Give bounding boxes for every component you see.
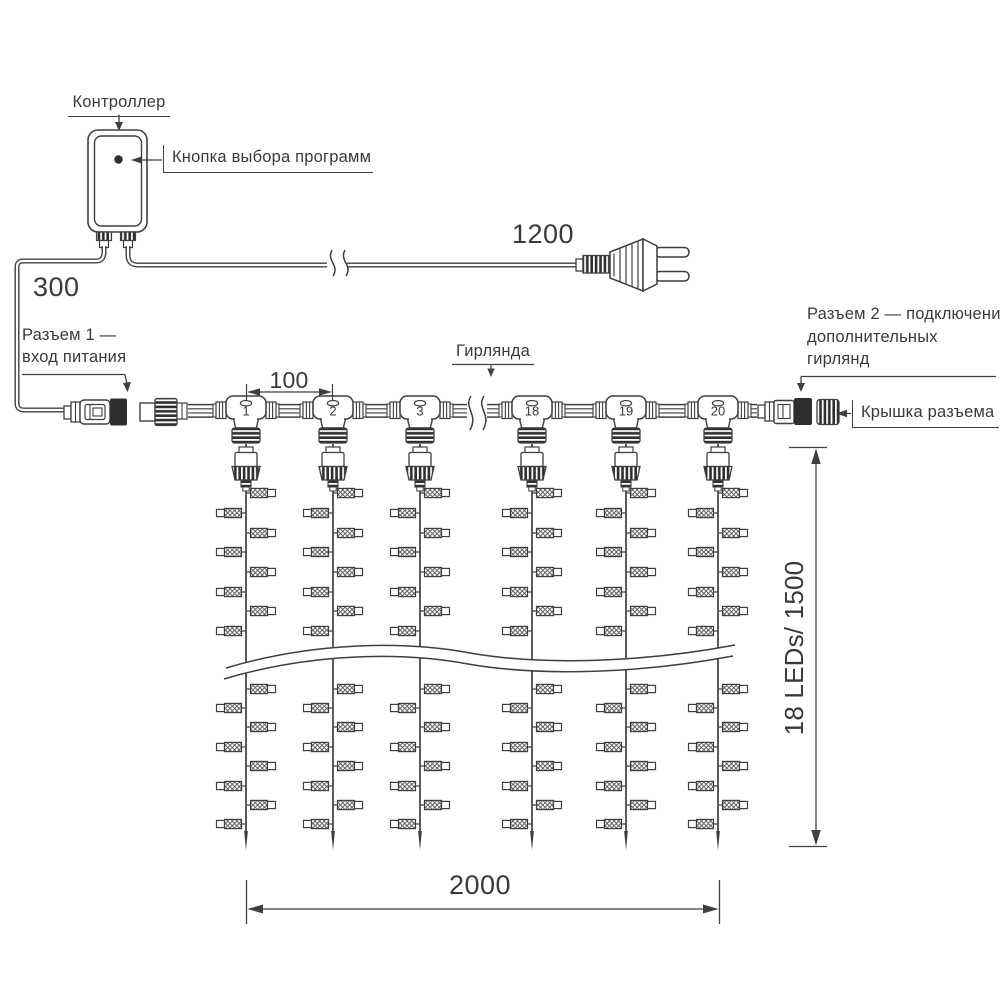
led <box>420 722 450 731</box>
led-body <box>312 703 329 712</box>
power-input-connector <box>64 399 187 426</box>
led-cap <box>268 762 276 769</box>
led-cap <box>503 782 511 789</box>
led-cap <box>597 704 605 711</box>
led-cap <box>554 607 562 614</box>
connector2-socket <box>794 398 812 425</box>
program-select-button <box>114 155 122 163</box>
led-body <box>338 488 355 497</box>
led-body <box>605 626 622 635</box>
led <box>304 742 334 751</box>
drop-ring-nut <box>518 428 546 443</box>
led-cap <box>217 548 225 555</box>
led-cap <box>442 568 450 575</box>
led-cap <box>355 762 363 769</box>
led <box>391 703 421 712</box>
led-body <box>511 819 528 828</box>
led-body <box>537 567 554 576</box>
led <box>246 800 276 809</box>
led-cap <box>648 607 656 614</box>
led-body <box>225 781 242 790</box>
led-cap <box>689 820 697 827</box>
led <box>217 626 247 635</box>
led-cap <box>740 762 748 769</box>
led <box>333 761 363 770</box>
t-connector-nut <box>216 402 226 419</box>
connector1-label: Разъем 1 — вход питания <box>22 325 126 368</box>
led <box>718 800 748 809</box>
t-connector-nut <box>390 402 400 419</box>
led <box>503 547 533 556</box>
led <box>532 567 562 576</box>
led <box>626 488 656 497</box>
led-body <box>312 547 329 556</box>
led-body <box>251 761 268 770</box>
drop-ring-nut <box>232 428 260 443</box>
led-body <box>312 508 329 517</box>
led <box>391 547 421 556</box>
led-body <box>631 567 648 576</box>
led-body <box>605 742 622 751</box>
led <box>420 684 450 693</box>
led <box>217 819 247 828</box>
led-cap <box>740 723 748 730</box>
led-body <box>723 761 740 770</box>
led-body <box>697 626 714 635</box>
led <box>626 800 656 809</box>
led-body <box>697 703 714 712</box>
led-body <box>338 606 355 615</box>
connector2-label-line1: Разъем 2 — подключение <box>807 303 1000 326</box>
led <box>420 528 450 537</box>
led-body <box>399 626 416 635</box>
drop-cone <box>704 467 732 481</box>
led-body <box>631 684 648 693</box>
led-cap <box>597 588 605 595</box>
led-body <box>697 781 714 790</box>
garland-plug-nut <box>155 399 177 426</box>
led-cap <box>503 588 511 595</box>
cable-break-mark <box>469 396 473 430</box>
led <box>217 703 247 712</box>
led-cap <box>597 743 605 750</box>
led-cap <box>740 685 748 692</box>
led <box>597 626 627 635</box>
led-body <box>425 488 442 497</box>
led <box>246 761 276 770</box>
led-cap <box>268 723 276 730</box>
led-cap <box>503 743 511 750</box>
drop-ring-nut <box>612 428 640 443</box>
led-body <box>225 819 242 828</box>
led-cap <box>597 548 605 555</box>
led-cap <box>268 607 276 614</box>
led <box>532 800 562 809</box>
led-body <box>631 722 648 731</box>
drop-number: 3 <box>416 404 423 419</box>
led <box>597 547 627 556</box>
led-body <box>338 684 355 693</box>
led <box>304 587 334 596</box>
led <box>532 488 562 497</box>
arrow-to-connector2 <box>797 383 805 392</box>
arrow-to-connector1 <box>123 382 131 392</box>
led-body <box>631 606 648 615</box>
led <box>689 781 719 790</box>
string-tip <box>716 831 720 850</box>
led-body <box>723 800 740 809</box>
led <box>304 703 334 712</box>
led <box>532 722 562 731</box>
lead-wire-dimension: 300 <box>33 274 80 301</box>
drop-ring-nut <box>406 428 434 443</box>
mains-plug <box>576 239 689 291</box>
led-body <box>251 800 268 809</box>
led-cap <box>217 743 225 750</box>
connector1-ring <box>110 399 127 426</box>
led <box>304 508 334 517</box>
led-cap <box>689 782 697 789</box>
led-cap <box>503 509 511 516</box>
led-curtain-diagram: 123181920 <box>0 0 1000 1000</box>
led-body <box>511 742 528 751</box>
plug-strain-relief <box>576 259 583 271</box>
led <box>217 547 247 556</box>
led-body <box>605 703 622 712</box>
led-body <box>425 761 442 770</box>
led-cap <box>503 820 511 827</box>
t-connector-nut <box>440 402 450 419</box>
drop-number: 19 <box>619 404 633 419</box>
led <box>689 819 719 828</box>
led-cap <box>355 801 363 808</box>
drop-connector <box>615 453 637 467</box>
led-body <box>631 488 648 497</box>
led <box>532 528 562 537</box>
led <box>391 742 421 751</box>
led-body <box>338 567 355 576</box>
led <box>597 781 627 790</box>
led-cap <box>648 723 656 730</box>
led-body <box>537 722 554 731</box>
led-cap <box>304 743 312 750</box>
led-body <box>723 722 740 731</box>
led <box>532 684 562 693</box>
t-connector-nut <box>303 402 313 419</box>
led <box>597 742 627 751</box>
led <box>246 606 276 615</box>
led-body <box>631 528 648 537</box>
led-cap <box>648 762 656 769</box>
led-body <box>631 761 648 770</box>
led-cap <box>391 782 399 789</box>
led <box>217 587 247 596</box>
led <box>597 703 627 712</box>
led-body <box>605 781 622 790</box>
led <box>420 567 450 576</box>
led <box>391 508 421 517</box>
led <box>246 722 276 731</box>
led-body <box>723 684 740 693</box>
led <box>246 488 276 497</box>
led-body <box>537 528 554 537</box>
led <box>304 547 334 556</box>
led-body <box>511 703 528 712</box>
t-connector-nut <box>596 402 606 419</box>
led-body <box>511 626 528 635</box>
led-body <box>723 528 740 537</box>
led-cap <box>689 704 697 711</box>
controller-body-inner <box>95 136 142 226</box>
led-cap <box>442 607 450 614</box>
led-body <box>312 742 329 751</box>
led-body <box>723 488 740 497</box>
led-body <box>399 819 416 828</box>
led-body <box>251 722 268 731</box>
t-connector-nut <box>646 402 656 419</box>
drop-number: 1 <box>242 404 249 419</box>
drop-number: 2 <box>329 404 336 419</box>
drop-connector <box>235 453 257 467</box>
drop-number: 20 <box>711 404 725 419</box>
led-body <box>511 587 528 596</box>
led-cap <box>355 685 363 692</box>
led-cap <box>503 548 511 555</box>
led <box>718 528 748 537</box>
controller <box>88 130 147 248</box>
plug-prong <box>655 272 689 282</box>
led-body <box>225 587 242 596</box>
led-cap <box>689 627 697 634</box>
led-body <box>399 508 416 517</box>
led-body <box>537 684 554 693</box>
led-body <box>225 547 242 556</box>
led-body <box>399 587 416 596</box>
led <box>626 722 656 731</box>
led-body <box>511 547 528 556</box>
led <box>503 626 533 635</box>
led-body <box>225 508 242 517</box>
led-cap <box>648 685 656 692</box>
led-body <box>225 626 242 635</box>
led-body <box>605 547 622 556</box>
led <box>333 800 363 809</box>
arrow-to-garland <box>487 369 494 378</box>
led-body <box>697 547 714 556</box>
led <box>420 488 450 497</box>
led <box>420 606 450 615</box>
connector2-label-line2: дополнительных <box>807 326 1000 349</box>
led <box>333 684 363 693</box>
plug-strain-relief <box>583 256 609 274</box>
led <box>304 819 334 828</box>
garland-cable-break <box>469 396 486 430</box>
led-cap <box>304 782 312 789</box>
led-cap <box>442 723 450 730</box>
led-cap <box>689 588 697 595</box>
string-tip <box>530 831 534 850</box>
drop-ring-nut <box>704 428 732 443</box>
led-body <box>425 606 442 615</box>
drop-connector <box>322 453 344 467</box>
t-connector-nut <box>552 402 562 419</box>
led-body <box>723 606 740 615</box>
led-body <box>251 567 268 576</box>
string-tip <box>244 831 248 850</box>
led-cap <box>740 607 748 614</box>
led-cap <box>217 782 225 789</box>
cable-break-mark <box>330 250 335 276</box>
led <box>503 587 533 596</box>
led <box>333 567 363 576</box>
led-cap <box>442 489 450 496</box>
string-tip <box>331 831 335 850</box>
led-cap <box>304 704 312 711</box>
led <box>246 567 276 576</box>
t-connector-nut <box>266 402 276 419</box>
led-cap <box>740 489 748 496</box>
led-body <box>723 567 740 576</box>
led-cap <box>442 685 450 692</box>
led-body <box>399 781 416 790</box>
led-body <box>312 587 329 596</box>
led <box>718 684 748 693</box>
led <box>689 742 719 751</box>
led <box>503 742 533 751</box>
led <box>246 684 276 693</box>
led <box>420 761 450 770</box>
led <box>689 703 719 712</box>
led-cap <box>217 588 225 595</box>
led <box>626 528 656 537</box>
led-cap <box>355 529 363 536</box>
led <box>626 567 656 576</box>
led <box>217 508 247 517</box>
drop-assembly: 18 <box>499 396 565 850</box>
cable-gland <box>97 232 112 241</box>
led <box>333 606 363 615</box>
led-cap <box>740 801 748 808</box>
drop-cone <box>518 467 546 481</box>
string-tip <box>624 831 628 850</box>
led-body <box>425 684 442 693</box>
led-cap <box>304 820 312 827</box>
led-cap <box>391 820 399 827</box>
drop-assembly: 1 <box>213 396 279 850</box>
led <box>503 508 533 517</box>
cable-gland <box>121 232 136 241</box>
t-connector-nut <box>688 402 698 419</box>
led-body <box>312 626 329 635</box>
led-cap <box>391 588 399 595</box>
extension-connector <box>758 398 839 425</box>
led-cap <box>648 568 656 575</box>
led-cap <box>554 762 562 769</box>
led-cap <box>391 743 399 750</box>
led <box>597 587 627 596</box>
led <box>689 547 719 556</box>
led <box>689 626 719 635</box>
led-cap <box>597 509 605 516</box>
led <box>689 587 719 596</box>
led-cap <box>597 782 605 789</box>
led-cap <box>304 627 312 634</box>
plug-face <box>643 239 657 291</box>
string-tip <box>418 831 422 850</box>
led-cap <box>554 723 562 730</box>
led-body <box>425 567 442 576</box>
drop-cone <box>406 467 434 481</box>
drop-assembly: 20 <box>685 396 751 850</box>
led <box>391 819 421 828</box>
led-cap <box>442 762 450 769</box>
connector1-label-line1: Разъем 1 — <box>22 325 126 347</box>
led-cap <box>554 801 562 808</box>
controller-label: Контроллер <box>68 92 170 117</box>
led-body <box>251 528 268 537</box>
led <box>304 626 334 635</box>
led-cap <box>268 568 276 575</box>
led-cap <box>442 529 450 536</box>
led-body <box>399 703 416 712</box>
led-cap <box>355 568 363 575</box>
drop-cone <box>612 467 640 481</box>
led <box>333 722 363 731</box>
led-cap <box>740 529 748 536</box>
led-body <box>605 819 622 828</box>
led <box>217 742 247 751</box>
led-body <box>251 684 268 693</box>
led-cap <box>689 509 697 516</box>
led-cap <box>554 568 562 575</box>
led <box>532 761 562 770</box>
led-body <box>225 742 242 751</box>
power-cord-dimension: 1200 <box>510 221 576 248</box>
led <box>333 528 363 537</box>
led-body <box>511 508 528 517</box>
led-body <box>537 800 554 809</box>
led-cap <box>304 588 312 595</box>
led-body <box>537 606 554 615</box>
power-cord-1200 <box>128 246 577 265</box>
led-body <box>631 800 648 809</box>
led-body <box>425 800 442 809</box>
led-body <box>251 606 268 615</box>
led-cap <box>355 607 363 614</box>
drop-connector <box>409 453 431 467</box>
led <box>597 508 627 517</box>
led-body <box>399 742 416 751</box>
led-body <box>425 528 442 537</box>
led-cap <box>648 489 656 496</box>
led-body <box>537 488 554 497</box>
led-body <box>605 508 622 517</box>
connector2-label-line3: гирлянд <box>807 348 1000 371</box>
plug-prong <box>655 248 689 258</box>
led <box>597 819 627 828</box>
led-cap <box>503 627 511 634</box>
led <box>304 781 334 790</box>
led-cap <box>355 489 363 496</box>
led-cap <box>268 529 276 536</box>
led-body <box>425 722 442 731</box>
led-cap <box>391 627 399 634</box>
led <box>718 606 748 615</box>
led-body <box>605 587 622 596</box>
led-cap <box>597 820 605 827</box>
drop-cone <box>319 467 347 481</box>
led-body <box>225 703 242 712</box>
